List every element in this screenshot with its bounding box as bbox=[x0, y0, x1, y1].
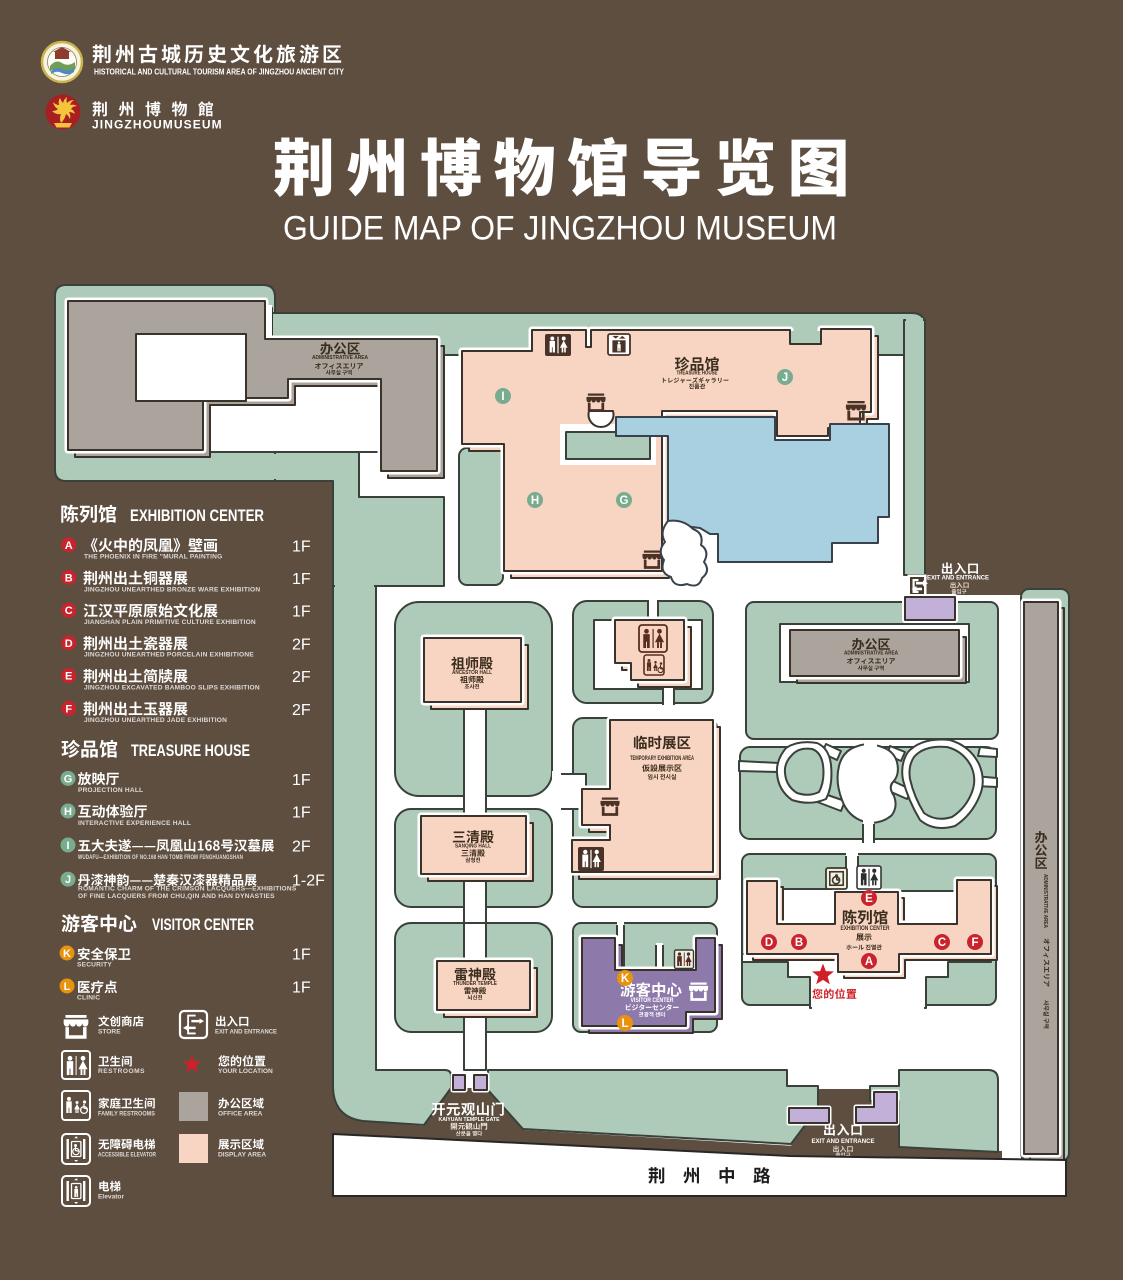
svg-text:G: G bbox=[620, 495, 629, 507]
svg-text:INTERACTIVE EXPERIENCE HALL: INTERACTIVE EXPERIENCE HALL bbox=[78, 820, 191, 827]
svg-text:I: I bbox=[501, 391, 504, 403]
svg-text:JINGZHOU EXCAVATED BAMBOO SLIP: JINGZHOU EXCAVATED BAMBOO SLIPS EXHIBITI… bbox=[84, 684, 260, 691]
svg-text:ADMINISTRATIVE AREA: ADMINISTRATIVE AREA bbox=[1042, 874, 1048, 928]
svg-text:2F: 2F bbox=[292, 702, 311, 719]
svg-text:DISPLAY AREA: DISPLAY AREA bbox=[218, 1152, 266, 1159]
svg-text:L: L bbox=[64, 981, 71, 993]
svg-text:ROMANTIC CHARM OF THE CRIMSON: ROMANTIC CHARM OF THE CRIMSON LACQUERS—E… bbox=[78, 886, 297, 893]
svg-text:ADMINISTRATIVE AREA: ADMINISTRATIVE AREA bbox=[844, 651, 898, 657]
svg-text:J: J bbox=[65, 874, 71, 886]
svg-text:1F: 1F bbox=[292, 772, 311, 789]
svg-text:TEMPORARY EXHIBITION AREA: TEMPORARY EXHIBITION AREA bbox=[630, 756, 694, 762]
svg-text:E: E bbox=[865, 893, 873, 905]
svg-text:OFFICE AREA: OFFICE AREA bbox=[218, 1111, 263, 1118]
svg-text:1F: 1F bbox=[292, 980, 311, 997]
svg-text:EXIT AND ENTRANCE: EXIT AND ENTRANCE bbox=[927, 576, 989, 582]
svg-text:F: F bbox=[971, 937, 978, 949]
svg-text:THE PHOENIX IN FIRE "MURAL PAI: THE PHOENIX IN FIRE "MURAL PAINTING bbox=[84, 554, 222, 561]
svg-text:1F: 1F bbox=[292, 604, 311, 621]
svg-text:JINGZHOU UNEARTHED JADE EXHIBI: JINGZHOU UNEARTHED JADE EXHIBITION bbox=[84, 717, 227, 724]
svg-text:WUDAFU—EXHIBITION OF NO.168 HA: WUDAFU—EXHIBITION OF NO.168 HAN TOMB FRO… bbox=[78, 854, 243, 861]
svg-text:VISITOR CENTER: VISITOR CENTER bbox=[631, 998, 675, 1004]
svg-text:HISTORICAL AND CULTURAL TOURIS: HISTORICAL AND CULTURAL TOURISM AREA OF … bbox=[94, 68, 345, 77]
svg-text:2F: 2F bbox=[292, 636, 311, 653]
svg-text:STORE: STORE bbox=[98, 1029, 121, 1036]
svg-text:PROJECTION HALL: PROJECTION HALL bbox=[78, 787, 143, 794]
svg-text:JINGZHOU UNEARTHED PORCELAIN E: JINGZHOU UNEARTHED PORCELAIN EXHIBITIONE bbox=[84, 652, 254, 659]
svg-text:TREASURE HOUSE: TREASURE HOUSE bbox=[131, 741, 250, 760]
svg-text:G: G bbox=[64, 773, 73, 785]
svg-text:A: A bbox=[65, 540, 73, 552]
svg-text:CLINIC: CLINIC bbox=[77, 995, 100, 1002]
svg-text:2F: 2F bbox=[292, 839, 311, 856]
svg-text:EXIT AND ENTRANCE: EXIT AND ENTRANCE bbox=[812, 1138, 876, 1145]
svg-text:KAIYUAN TEMPLE GATE: KAIYUAN TEMPLE GATE bbox=[439, 1117, 500, 1123]
svg-text:E: E bbox=[65, 671, 72, 683]
svg-text:1-2F: 1-2F bbox=[292, 873, 325, 890]
svg-text:H: H bbox=[64, 806, 72, 818]
svg-text:C: C bbox=[938, 937, 946, 949]
svg-text:1F: 1F bbox=[292, 947, 311, 964]
svg-text:A: A bbox=[865, 956, 873, 968]
svg-text:JINGZHOUMUSEUM: JINGZHOUMUSEUM bbox=[92, 118, 223, 132]
svg-text:ADMINISTRATIVE AREA: ADMINISTRATIVE AREA bbox=[312, 355, 368, 361]
svg-text:F: F bbox=[65, 703, 72, 715]
svg-text:B: B bbox=[795, 937, 803, 949]
svg-text:I: I bbox=[66, 840, 69, 852]
svg-text:L: L bbox=[621, 1018, 628, 1030]
svg-text:EXIT AND ENTRANCE: EXIT AND ENTRANCE bbox=[215, 1029, 278, 1036]
svg-text:D: D bbox=[765, 937, 773, 949]
svg-text:2F: 2F bbox=[292, 669, 311, 686]
svg-text:EXHIBITION CENTER: EXHIBITION CENTER bbox=[841, 925, 890, 932]
svg-text:1F: 1F bbox=[292, 571, 311, 588]
svg-text:THUNDER TEMPLE: THUNDER TEMPLE bbox=[453, 981, 498, 987]
svg-text:RESTROOMS: RESTROOMS bbox=[98, 1068, 145, 1075]
svg-text:1F: 1F bbox=[292, 805, 311, 822]
svg-text:OF FINE LACQUERS FROM CHU,QIN: OF FINE LACQUERS FROM CHU,QIN AND HAN DY… bbox=[78, 893, 275, 900]
svg-text:B: B bbox=[65, 572, 73, 584]
svg-text:VISITOR CENTER: VISITOR CENTER bbox=[152, 915, 254, 934]
svg-text:D: D bbox=[65, 638, 73, 650]
svg-text:EXHIBITION CENTER: EXHIBITION CENTER bbox=[130, 506, 264, 525]
svg-text:ACCESSIBLE ELEVATOR: ACCESSIBLE ELEVATOR bbox=[98, 1152, 156, 1159]
svg-text:YOUR LOCATION: YOUR LOCATION bbox=[218, 1068, 273, 1075]
svg-text:JIANGHAN PLAIN PRIMITIVE CULTU: JIANGHAN PLAIN PRIMITIVE CULTURE EXHIBIT… bbox=[84, 619, 256, 626]
svg-text:JINGZHOU UNEARTHED BRONZE WARE: JINGZHOU UNEARTHED BRONZE WARE EXHIBITIO… bbox=[84, 586, 260, 593]
svg-text:K: K bbox=[621, 973, 630, 985]
svg-text:TREASURE HOUSE: TREASURE HOUSE bbox=[677, 371, 719, 377]
svg-text:K: K bbox=[63, 948, 71, 960]
svg-text:1F: 1F bbox=[292, 538, 311, 555]
svg-text:ANCESTOR HALL: ANCESTOR HALL bbox=[452, 670, 492, 676]
svg-text:C: C bbox=[65, 605, 73, 617]
svg-text:SECURITY: SECURITY bbox=[77, 962, 112, 969]
svg-text:SANQING HALL: SANQING HALL bbox=[455, 844, 491, 850]
svg-text:GUIDE MAP OF JINGZHOU MUSEUM: GUIDE MAP OF JINGZHOU MUSEUM bbox=[283, 210, 837, 248]
svg-text:Elevator: Elevator bbox=[98, 1194, 124, 1201]
svg-text:J: J bbox=[782, 372, 788, 384]
svg-text:FAMILY RESTROOMS: FAMILY RESTROOMS bbox=[98, 1111, 156, 1118]
svg-text:H: H bbox=[531, 495, 539, 507]
